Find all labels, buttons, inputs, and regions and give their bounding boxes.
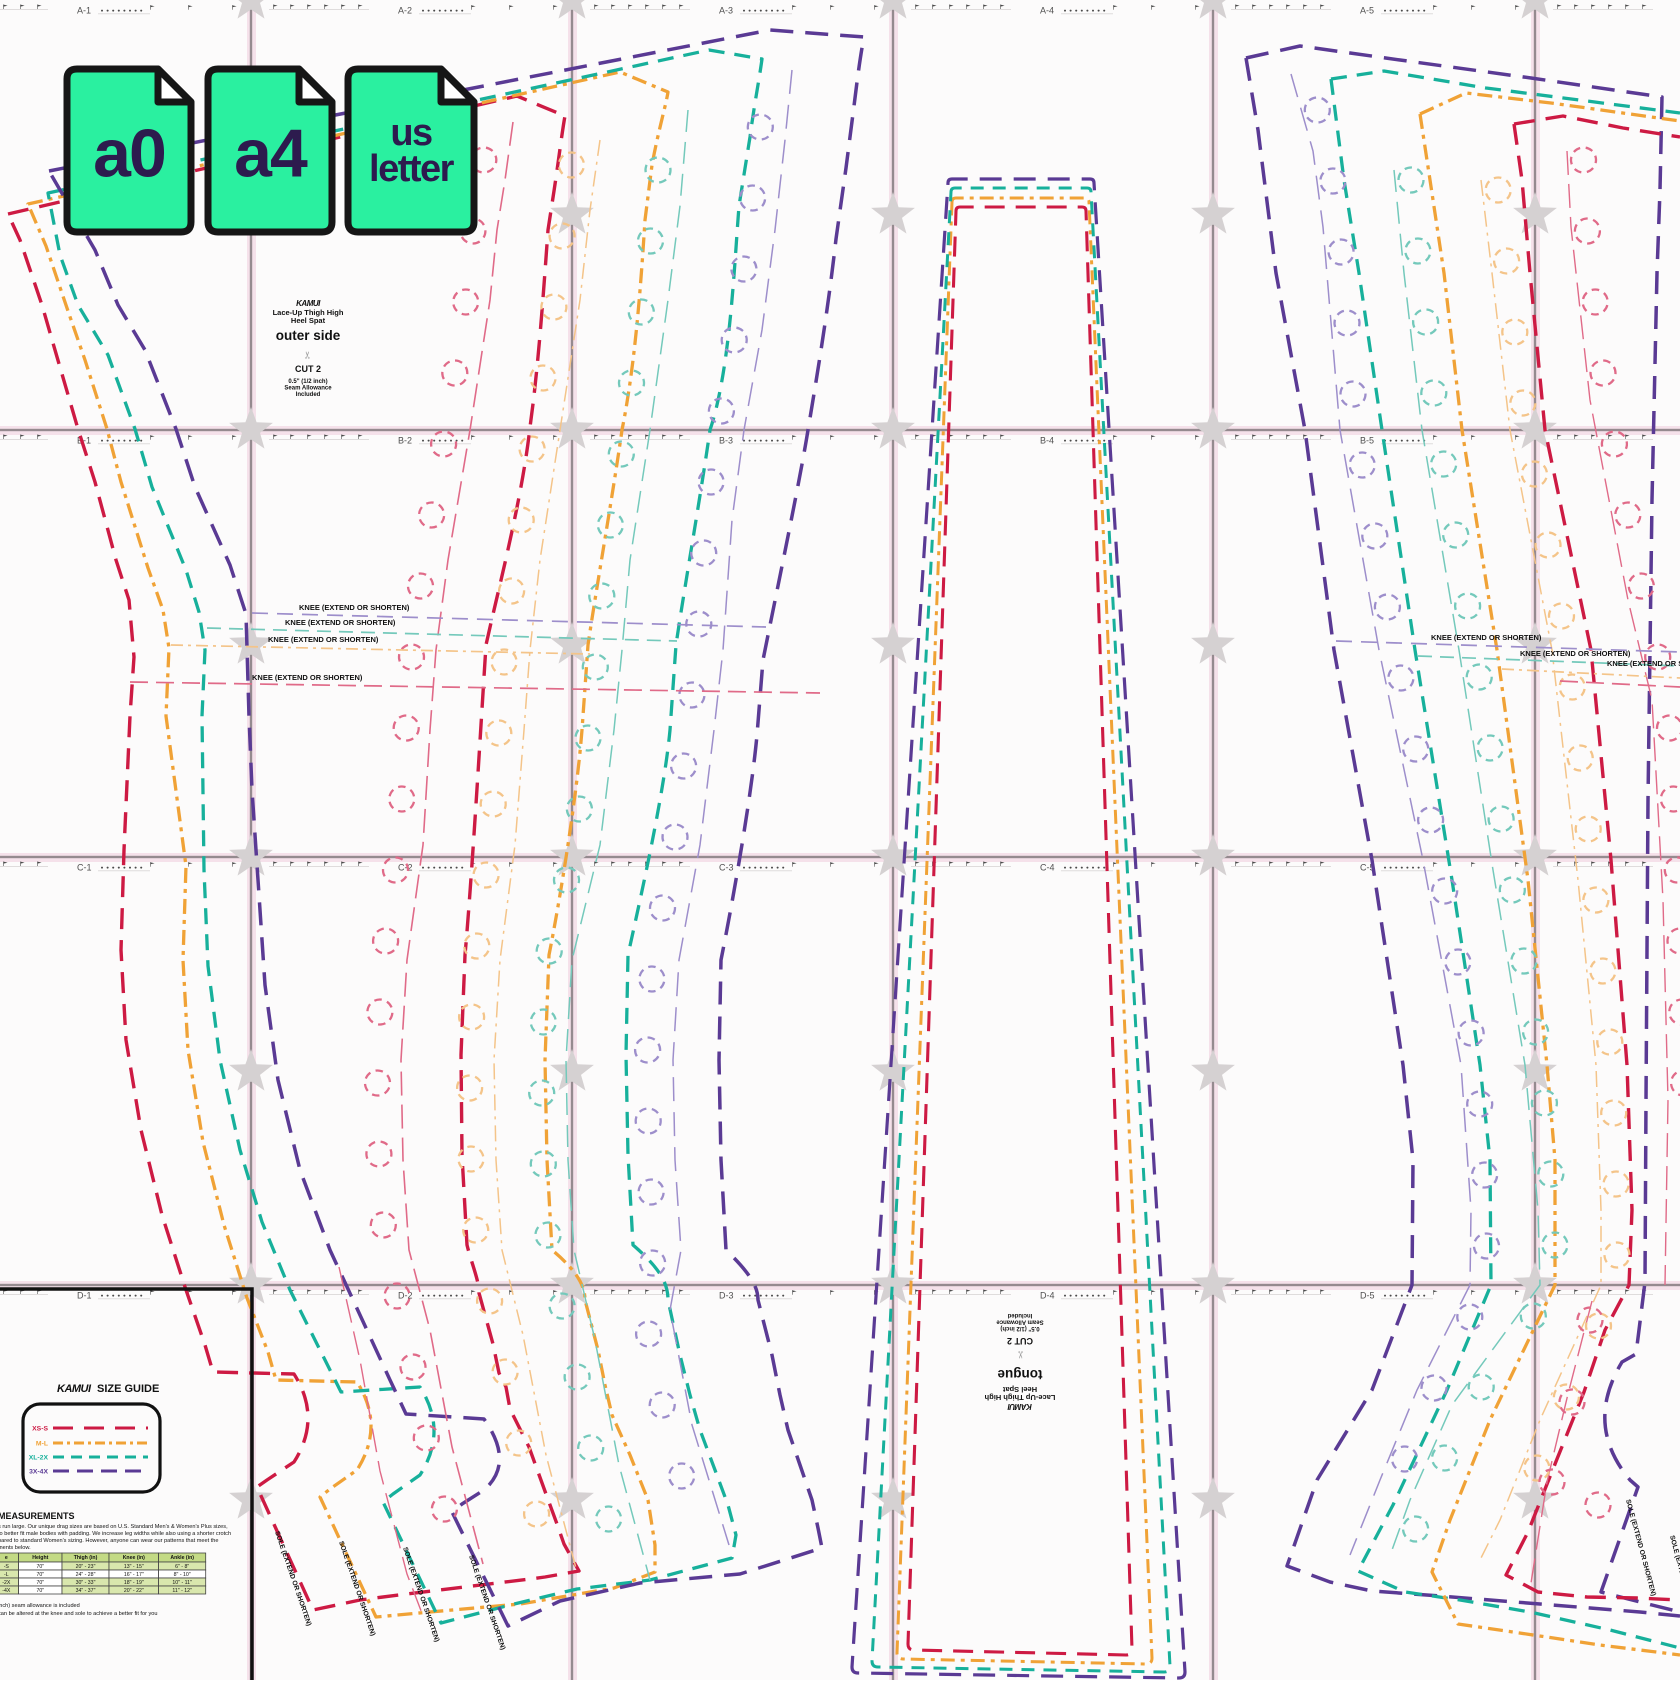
svg-text:Ankle (in): Ankle (in) — [170, 1555, 194, 1561]
svg-text:Included: Included — [1007, 1312, 1032, 1318]
svg-text:SIZE GUIDE: SIZE GUIDE — [97, 1383, 159, 1395]
svg-text:10" - 11": 10" - 11" — [172, 1580, 192, 1586]
svg-text:tongue: tongue — [997, 1367, 1042, 1382]
svg-text:-S: -S — [4, 1564, 10, 1570]
svg-text:a0: a0 — [93, 116, 165, 192]
svg-text:6" - 8": 6" - 8" — [175, 1564, 189, 1570]
svg-text:KNEE (EXTEND OR SHORTEN): KNEE (EXTEND OR SHORTEN) — [1431, 633, 1542, 642]
svg-text:KNEE (EXTEND OR SHORTEN): KNEE (EXTEND OR SHORTEN) — [285, 618, 396, 627]
svg-text:Included: Included — [296, 392, 321, 398]
svg-text:C-1: C-1 — [77, 863, 92, 873]
svg-text:KNEE (EXTEND OR SHORTEN): KNEE (EXTEND OR SHORTEN) — [268, 635, 379, 644]
svg-text:KAMUI: KAMUI — [296, 299, 321, 308]
svg-text:B-4: B-4 — [1040, 436, 1054, 446]
svg-text:KNEE (EXTEND OR SHORTEN): KNEE (EXTEND OR SHORTEN) — [299, 603, 410, 612]
svg-text:✂: ✂ — [303, 351, 314, 359]
svg-text:30" - 33": 30" - 33" — [76, 1580, 96, 1586]
svg-text:A-2: A-2 — [398, 6, 412, 16]
svg-text:Seam Allowance: Seam Allowance — [996, 1319, 1044, 1325]
svg-text:D-5: D-5 — [1360, 1291, 1375, 1301]
svg-text:20" - 23": 20" - 23" — [76, 1564, 96, 1570]
svg-text:s run large. Our unique drag s: s run large. Our unique drag sizes are b… — [0, 1524, 228, 1530]
svg-text:70": 70" — [36, 1564, 44, 1570]
svg-text:B-3: B-3 — [719, 436, 733, 446]
svg-text:-2X: -2X — [2, 1580, 11, 1586]
svg-text:KAMUI: KAMUI — [1007, 1402, 1032, 1411]
svg-text:KAMUI: KAMUI — [57, 1383, 92, 1395]
svg-text:A-3: A-3 — [719, 6, 733, 16]
svg-text:16" - 17": 16" - 17" — [124, 1572, 144, 1578]
svg-text:0.5" (1/2 inch): 0.5" (1/2 inch) — [288, 379, 327, 385]
svg-text:B-2: B-2 — [398, 436, 412, 446]
svg-text:CUT 2: CUT 2 — [1007, 1336, 1033, 1346]
svg-text:XS-S: XS-S — [32, 1426, 48, 1433]
svg-text:A-4: A-4 — [1040, 6, 1054, 16]
svg-text:ments below.: ments below. — [0, 1545, 31, 1551]
svg-text:✂: ✂ — [1014, 1351, 1025, 1359]
svg-text:D-1: D-1 — [77, 1291, 92, 1301]
svg-text:18" - 19": 18" - 19" — [124, 1580, 144, 1586]
svg-text:Heel Spat: Heel Spat — [1002, 1385, 1037, 1394]
svg-text:pared to standard Women's sizi: pared to standard Women's sizing. Howeve… — [0, 1538, 219, 1544]
svg-text:C-3: C-3 — [719, 863, 734, 873]
svg-text:M-L: M-L — [36, 1441, 48, 1448]
svg-text:Thigh (in): Thigh (in) — [74, 1555, 98, 1561]
svg-text:XL-2X: XL-2X — [29, 1455, 49, 1462]
svg-text:11" - 12": 11" - 12" — [172, 1588, 192, 1594]
svg-text:KNEE (EXTEND OR SHORTEN): KNEE (EXTEND OR SHORTEN) — [1607, 659, 1680, 668]
svg-text:KNEE (EXTEND OR SHORTEN): KNEE (EXTEND OR SHORTEN) — [1520, 649, 1631, 658]
svg-text:outer side: outer side — [276, 328, 341, 343]
svg-text:inch) seam allowance is includ: inch) seam allowance is included — [0, 1603, 80, 1609]
svg-text:Heel Spat: Heel Spat — [291, 316, 326, 325]
svg-text:to better fit male bodies with: to better fit male bodies with padding. … — [0, 1531, 231, 1537]
svg-text:Seam Allowance: Seam Allowance — [284, 386, 332, 392]
svg-text:C-2: C-2 — [398, 863, 413, 873]
svg-text:0.5" (1/2 inch): 0.5" (1/2 inch) — [1000, 1325, 1039, 1331]
svg-text:can be altered at the knee and: can be altered at the knee and sole to a… — [0, 1611, 158, 1617]
svg-text:24" - 28": 24" - 28" — [76, 1572, 96, 1578]
svg-text:3X-4X: 3X-4X — [29, 1469, 48, 1476]
svg-text:Height: Height — [32, 1555, 48, 1561]
svg-text:D-4: D-4 — [1040, 1291, 1055, 1301]
svg-text:70": 70" — [36, 1588, 44, 1594]
svg-text:20" - 22": 20" - 22" — [124, 1588, 144, 1594]
svg-text:8" - 10": 8" - 10" — [174, 1572, 191, 1578]
svg-text:CUT 2: CUT 2 — [295, 364, 321, 374]
svg-text:70": 70" — [36, 1580, 44, 1586]
svg-text:34" - 37": 34" - 37" — [76, 1588, 96, 1594]
svg-text:-4X: -4X — [2, 1588, 11, 1594]
svg-text:C-4: C-4 — [1040, 863, 1055, 873]
svg-text:Knee (in): Knee (in) — [123, 1555, 145, 1561]
svg-text:-L: -L — [4, 1572, 9, 1578]
svg-text:a4: a4 — [234, 116, 308, 192]
svg-text:D-3: D-3 — [719, 1291, 734, 1301]
svg-text:e: e — [5, 1555, 8, 1561]
svg-text:KNEE (EXTEND OR SHORTEN): KNEE (EXTEND OR SHORTEN) — [252, 673, 363, 682]
svg-text:13" - 15": 13" - 15" — [124, 1564, 144, 1570]
svg-text:letter: letter — [369, 148, 455, 190]
svg-text:MEASUREMENTS: MEASUREMENTS — [0, 1511, 75, 1521]
svg-text:B-5: B-5 — [1360, 436, 1374, 446]
svg-text:A-5: A-5 — [1360, 6, 1374, 16]
svg-text:A-1: A-1 — [77, 6, 91, 16]
svg-text:70": 70" — [36, 1572, 44, 1578]
